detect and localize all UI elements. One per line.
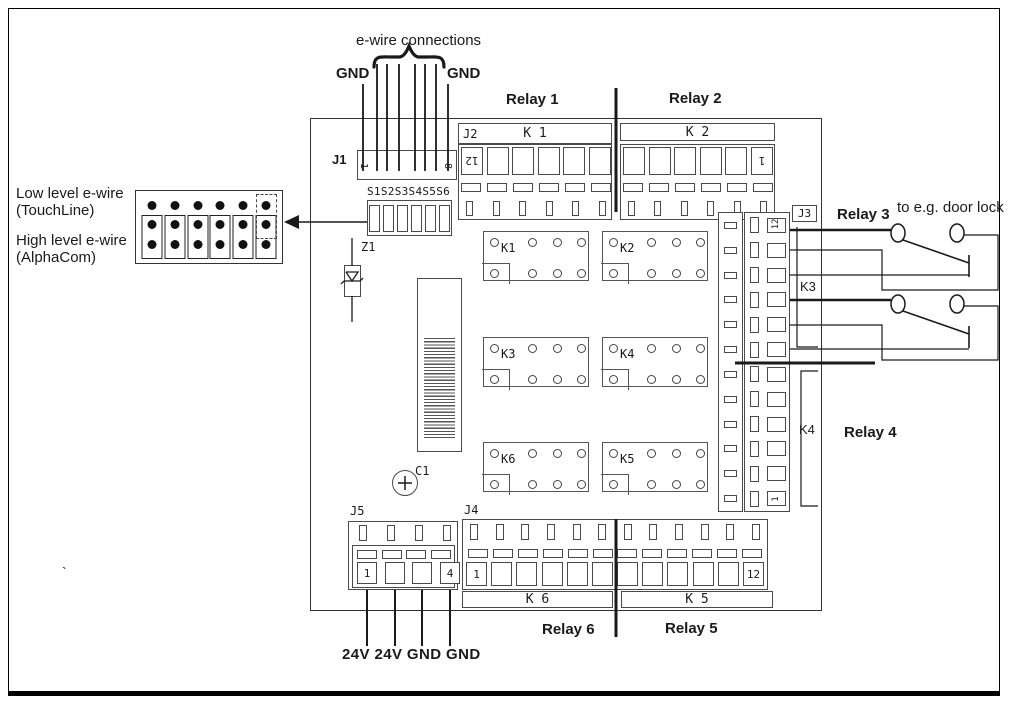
strip-terminal-row (745, 387, 789, 412)
terminal-slot (382, 550, 402, 559)
terminal-slot (742, 549, 762, 558)
relay2-section-label: Relay 2 (669, 91, 722, 108)
strip-slot (724, 421, 737, 428)
relay-ic-pin (490, 449, 499, 458)
k5-bar-label: K 5 (685, 592, 708, 607)
gnd-left-label: GND (336, 66, 369, 83)
terminal-square (725, 147, 747, 175)
c1-label: C1 (415, 465, 429, 478)
s-slot (383, 205, 394, 232)
strip-pin (750, 491, 759, 507)
j5-pins (359, 525, 451, 541)
relay5-section-label: Relay 5 (665, 621, 718, 638)
strip-slot (724, 346, 737, 353)
k2-bar: K 2 (620, 123, 775, 141)
terminal-slot (623, 183, 643, 192)
relay4-section-label: Relay 4 (844, 425, 897, 442)
relay-ic-k3: K3 (483, 337, 589, 387)
strip-terminal-row (745, 412, 789, 437)
relay-ic-pin (609, 449, 618, 458)
strip-square (767, 367, 786, 382)
terminal-square (693, 562, 714, 586)
strip-left-column (718, 212, 743, 512)
relay-ic-pin (553, 269, 562, 278)
relay-ic-k1: K1 (483, 231, 589, 281)
relay-ic-pin (696, 344, 705, 353)
legend-low-level-line2: (TouchLine) (16, 203, 94, 220)
terminal-square (538, 147, 560, 175)
terminal-slot (518, 549, 538, 558)
relay-ic-pin (553, 375, 562, 384)
e-wire-connections-label: e-wire connections (356, 33, 481, 50)
relay-ic-k1-label: K1 (501, 241, 515, 255)
terminal-pin (359, 525, 367, 541)
terminal-pin (654, 201, 661, 216)
terminal-pin (707, 201, 714, 216)
j4-slots (468, 549, 762, 558)
strip-slot (724, 222, 737, 229)
strip-slot (724, 495, 737, 502)
relay-ic-pin (609, 238, 618, 247)
terminal-pin (572, 201, 579, 216)
relay-ic-pin (647, 238, 656, 247)
terminal-square (567, 562, 588, 586)
relay-ic-pin (553, 449, 562, 458)
strip-terminals (744, 212, 790, 512)
strip-terminal-row (745, 312, 789, 337)
legend-low-level-line1: Low level e-wire (16, 186, 124, 203)
j3-label: J3 (798, 207, 811, 220)
strip-terminal-row (745, 238, 789, 263)
relay-ic-pin (490, 269, 499, 278)
relay-ic-pin (609, 480, 618, 489)
diagram-page: Low level e-wire (TouchLine) High level … (0, 0, 1009, 705)
relay3-section-label: Relay 3 (837, 207, 890, 224)
s-block-slots (369, 204, 450, 233)
strip-slot (724, 470, 737, 477)
j2-terminal-1-label: 1 (751, 147, 773, 175)
terminal-pin (701, 524, 709, 540)
j4-terminal-12-label: 12 (743, 562, 764, 586)
k5-bar: K 5 (621, 591, 773, 608)
k1-bar-label: K 1 (523, 126, 546, 141)
relay-ic-k4-label: K4 (620, 347, 634, 361)
strip-terminal-row (745, 337, 789, 362)
gnd-right-label: GND (447, 66, 480, 83)
terminal-pin (624, 524, 632, 540)
relay-ic-pin (672, 449, 681, 458)
j3-label-box: J3 (792, 205, 817, 222)
relay-ic-pin (647, 269, 656, 278)
terminal-slot (357, 550, 377, 559)
relay-ic-k2: K2 (602, 231, 708, 281)
terminal-square (718, 562, 739, 586)
relay-ic-pin (490, 375, 499, 384)
terminal-pin (443, 525, 451, 541)
terminal-slot (753, 183, 773, 192)
s-slot (369, 205, 380, 232)
strip-terminal-row (745, 436, 789, 461)
terminal-pin (546, 201, 553, 216)
relay-ic-pin (647, 449, 656, 458)
strip-slot (724, 247, 737, 254)
terminal-slot (717, 549, 737, 558)
relay-ic-pin (553, 238, 562, 247)
strip-terminal-1-label: 1 (768, 489, 784, 509)
terminal-square (412, 562, 432, 584)
relay-ic-pin (553, 344, 562, 353)
strip-terminal-row (745, 263, 789, 288)
terminal-slot (617, 549, 637, 558)
relay-ic-k5: K5 (602, 442, 708, 492)
terminal-slot (593, 549, 613, 558)
strip-square (767, 243, 786, 258)
terminal-pin (470, 524, 478, 540)
strip-square (767, 317, 786, 332)
terminal-slot (468, 549, 488, 558)
terminal-square (667, 562, 688, 586)
strip-slot (724, 396, 737, 403)
strip-square (767, 342, 786, 357)
relay-ic-pin (672, 238, 681, 247)
j2-left-slots (461, 183, 611, 192)
relay-ic-k4: K4 (602, 337, 708, 387)
k1-bar: J2 K 1 (458, 123, 612, 144)
strip-slot (724, 321, 737, 328)
k3-side-label: K3 (800, 280, 816, 295)
relay1-section-label: Relay 1 (506, 92, 559, 109)
relay-ic-pin (490, 238, 499, 247)
relay-ic-pin (696, 449, 705, 458)
terminal-square (649, 147, 671, 175)
j5-terminal-1-label: 1 (357, 562, 377, 584)
terminal-pin (598, 524, 606, 540)
terminal-pin (466, 201, 473, 216)
strip-pin (750, 391, 759, 407)
relay-ic-k6-label: K6 (501, 452, 515, 466)
strip-square (767, 292, 786, 307)
relay-ic-pin (490, 480, 499, 489)
j4-label: J4 (464, 504, 478, 517)
j5-label: J5 (350, 505, 364, 518)
strip-pin (750, 317, 759, 333)
terminal-square (589, 147, 611, 175)
terminal-slot (543, 549, 563, 558)
strip-pin (750, 217, 759, 233)
terminal-slot (591, 183, 611, 192)
strip-terminal-12-label: 12 (768, 214, 784, 234)
terminal-slot (461, 183, 481, 192)
hatch-lines (424, 338, 455, 438)
terminal-square (512, 147, 534, 175)
relay-ic-pin (647, 344, 656, 353)
terminal-slot (667, 549, 687, 558)
relay-ic-pin (528, 375, 537, 384)
legend-high-level-line1: High level e-wire (16, 233, 127, 250)
terminal-pin (415, 525, 423, 541)
terminal-square (642, 562, 663, 586)
j2-right-slots (623, 183, 773, 192)
relay-ic-pin (577, 344, 586, 353)
relay-ic-pin (672, 375, 681, 384)
relay-ic-pin (577, 449, 586, 458)
terminal-square (563, 147, 585, 175)
relay-ic-pin (696, 238, 705, 247)
j1-label: J1 (332, 153, 346, 168)
terminal-square (700, 147, 722, 175)
terminal-pin (675, 524, 683, 540)
strip-slot (724, 445, 737, 452)
terminal-square (674, 147, 696, 175)
terminal-pin (649, 524, 657, 540)
relay6-section-label: Relay 6 (542, 622, 595, 639)
relay-ic-k3-label: K3 (501, 347, 515, 361)
terminal-square (385, 562, 405, 584)
relay-ic-pin (609, 375, 618, 384)
relay-ic-pin (647, 480, 656, 489)
relay-ic-pin (696, 480, 705, 489)
strip-pin (750, 416, 759, 432)
terminal-square (617, 562, 638, 586)
relay-ic-pin (490, 344, 499, 353)
j2-terminal-12-label: 12 (461, 147, 483, 175)
terminal-pin (519, 201, 526, 216)
relay-ic-pin (672, 269, 681, 278)
j5-slots (357, 550, 451, 559)
strip-square (767, 392, 786, 407)
strip-square (767, 466, 786, 481)
relay-ic-pin (528, 344, 537, 353)
terminal-pin (387, 525, 395, 541)
terminal-square (487, 147, 509, 175)
terminal-pin (599, 201, 606, 216)
stray-mark: ` (62, 565, 67, 581)
terminal-square (623, 147, 645, 175)
terminal-slot (568, 549, 588, 558)
k2-bar-label: K 2 (686, 125, 709, 140)
s-slot (439, 205, 450, 232)
s-block-labels: S1S2S3S4S5S6 (367, 186, 450, 198)
terminal-pin (628, 201, 635, 216)
terminal-slot (727, 183, 747, 192)
terminal-pin (496, 524, 504, 540)
relay-ic-k2-label: K2 (620, 241, 634, 255)
strip-square (767, 268, 786, 283)
j4-pins (470, 524, 760, 540)
z1-label: Z1 (361, 241, 375, 254)
terminal-pin (573, 524, 581, 540)
terminal-slot (539, 183, 559, 192)
terminal-slot (692, 549, 712, 558)
k6-bar-label: K 6 (526, 592, 549, 607)
relay-ic-pin (577, 269, 586, 278)
s-slot (411, 205, 422, 232)
relay-ic-pin (696, 375, 705, 384)
terminal-pin (752, 524, 760, 540)
terminal-pin (681, 201, 688, 216)
terminal-slot (406, 550, 426, 559)
strip-pin (750, 441, 759, 457)
strip-pin (750, 366, 759, 382)
strip-slot (724, 272, 737, 279)
relay-ic-pin (672, 344, 681, 353)
relay-ic-pin (696, 269, 705, 278)
terminal-slot (675, 183, 695, 192)
relay-ic-pin (528, 449, 537, 458)
strip-terminal-row (745, 287, 789, 312)
legend-high-level-line2: (AlphaCom) (16, 250, 96, 267)
relay-ic-pin (577, 375, 586, 384)
strip-square (767, 417, 786, 432)
strip-square (767, 441, 786, 456)
j4-terminal-1-label: 1 (466, 562, 487, 586)
relay-ic-pin (577, 238, 586, 247)
relay-ic-pin (553, 480, 562, 489)
strip-terminal-row (745, 362, 789, 387)
relay-ic-pin (672, 480, 681, 489)
terminal-pin (493, 201, 500, 216)
relay-ic-pin (647, 375, 656, 384)
relay-ic-pin (528, 269, 537, 278)
k4-side-label: K4 (799, 423, 815, 438)
strip-pin (750, 267, 759, 283)
j5-terminal-4-label: 4 (440, 562, 460, 584)
relay-ic-pin (528, 238, 537, 247)
terminal-slot (701, 183, 721, 192)
j2-left-squares (461, 147, 611, 175)
terminal-pin (521, 524, 529, 540)
j1-pin1-label: 1 (355, 160, 373, 172)
terminal-square (542, 562, 563, 586)
strip-slot (724, 371, 737, 378)
terminal-slot (565, 183, 585, 192)
relay-ic-k6: K6 (483, 442, 589, 492)
terminal-slot (513, 183, 533, 192)
s-slot (425, 205, 436, 232)
relay-ic-k5-label: K5 (620, 452, 634, 466)
j4-squares (466, 562, 764, 586)
terminal-slot (487, 183, 507, 192)
z1-body (344, 265, 361, 297)
door-lock-label: to e.g. door lock (897, 200, 1004, 217)
terminal-slot (431, 550, 451, 559)
terminal-square (516, 562, 537, 586)
terminal-pin (726, 524, 734, 540)
strip-terminal-row (745, 461, 789, 486)
strip-slot (724, 296, 737, 303)
relay-ic-pin (528, 480, 537, 489)
terminal-square (491, 562, 512, 586)
relay-ic-pin (577, 480, 586, 489)
relay-ic-pin (609, 344, 618, 353)
k6-bar: K 6 (462, 591, 613, 608)
j1-pin8-label: 8 (436, 159, 460, 173)
terminal-slot (493, 549, 513, 558)
terminal-pin (547, 524, 555, 540)
strip-pin (750, 242, 759, 258)
terminal-square (592, 562, 613, 586)
power-labels: 24V 24V GND GND (342, 647, 481, 664)
j2-left-pins (466, 201, 606, 216)
strip-pin (750, 342, 759, 358)
jumper-alt-position-dashed (256, 194, 277, 239)
relay-ic-pin (609, 269, 618, 278)
j2-label: J2 (463, 127, 477, 141)
s-slot (397, 205, 408, 232)
strip-pin (750, 292, 759, 308)
strip-pin (750, 466, 759, 482)
terminal-slot (649, 183, 669, 192)
terminal-slot (642, 549, 662, 558)
